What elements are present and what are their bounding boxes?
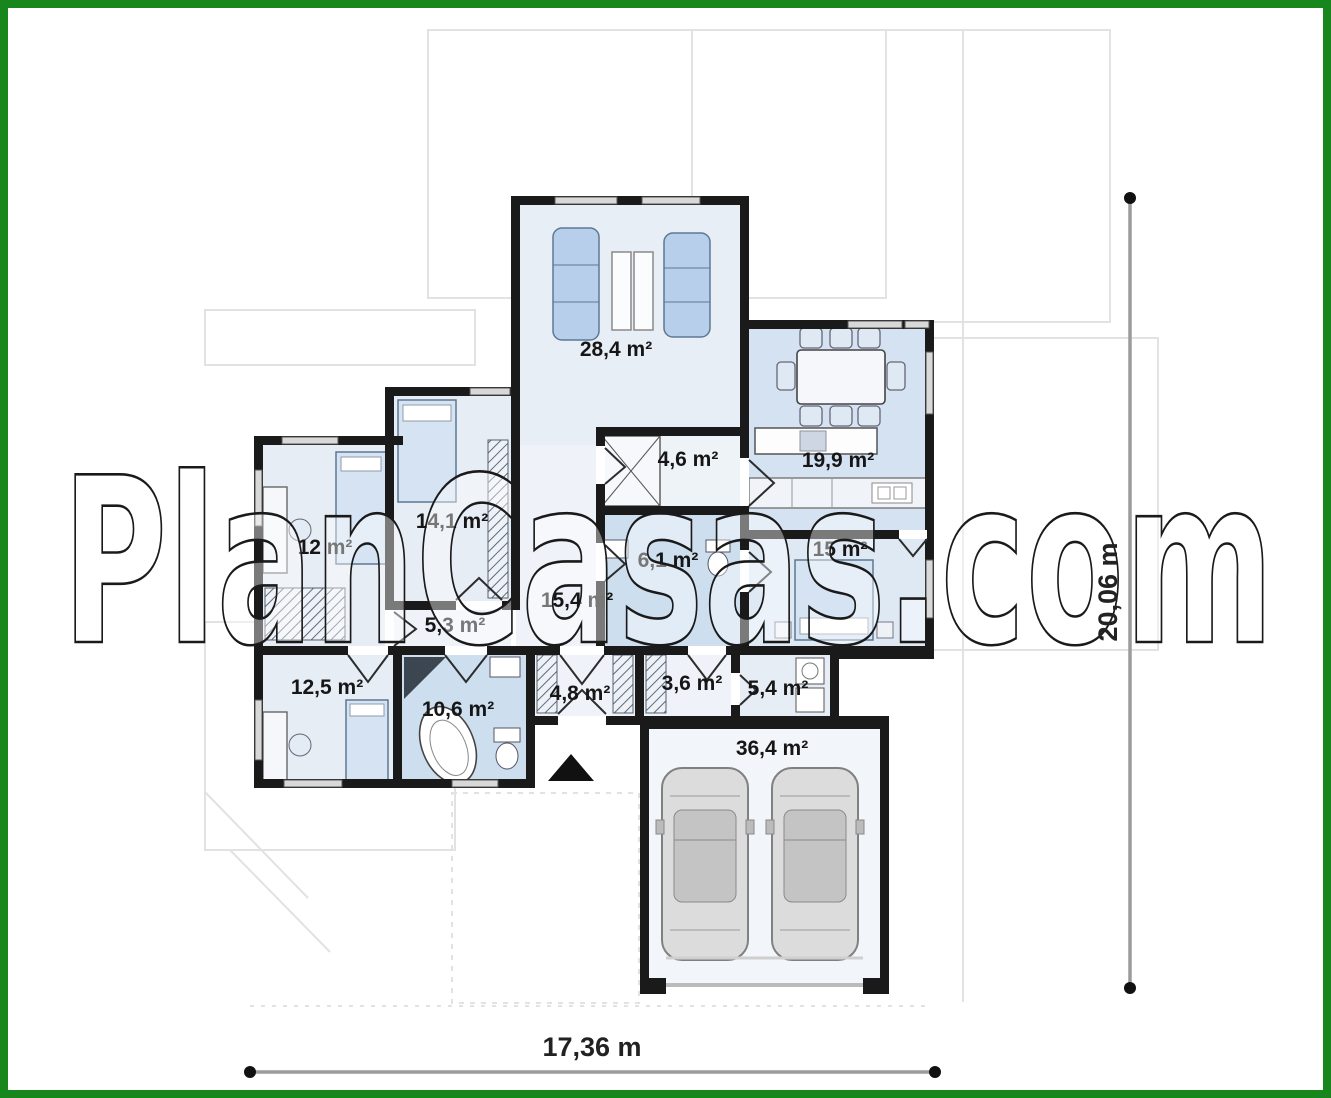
floor-plan-svg: 28,4 m² 19,9 m² 4,6 m² 6,1 m² 15 m² 14,1… — [0, 0, 1331, 1098]
window — [452, 780, 498, 787]
window — [642, 197, 700, 204]
wall-segment — [640, 716, 649, 994]
wall-segment — [863, 978, 889, 994]
wall-segment — [740, 196, 749, 329]
window — [555, 197, 617, 204]
bed-icon — [346, 700, 388, 784]
room-area-label: 10,6 m² — [422, 698, 494, 721]
width-dimension: 17,36 m — [244, 1032, 941, 1078]
door-gap — [558, 716, 606, 725]
room-area-label: 28,4 m² — [580, 338, 652, 361]
window — [470, 388, 510, 395]
sofa-icon — [553, 228, 599, 340]
window — [255, 700, 262, 760]
wall-segment — [880, 716, 889, 994]
height-dimension: 20,06 m — [1093, 192, 1136, 994]
window — [905, 321, 929, 328]
room-area-label: 36,4 m² — [736, 737, 808, 760]
wall-segment — [640, 716, 889, 729]
entrance-arrow-icon — [548, 754, 594, 781]
width-dimension-label: 17,36 m — [542, 1032, 641, 1062]
height-dimension-label: 20,06 m — [1093, 542, 1123, 641]
window — [926, 352, 933, 414]
car-icon — [656, 768, 754, 960]
window — [848, 321, 902, 328]
floor-plan-page: 28,4 m² 19,9 m² 4,6 m² 6,1 m² 15 m² 14,1… — [0, 0, 1331, 1098]
wall-segment — [640, 978, 666, 994]
wall-segment — [511, 196, 749, 205]
toilet-icon — [494, 728, 520, 769]
car-icon — [766, 768, 864, 960]
window — [284, 780, 342, 787]
sofa-icon — [664, 233, 710, 337]
